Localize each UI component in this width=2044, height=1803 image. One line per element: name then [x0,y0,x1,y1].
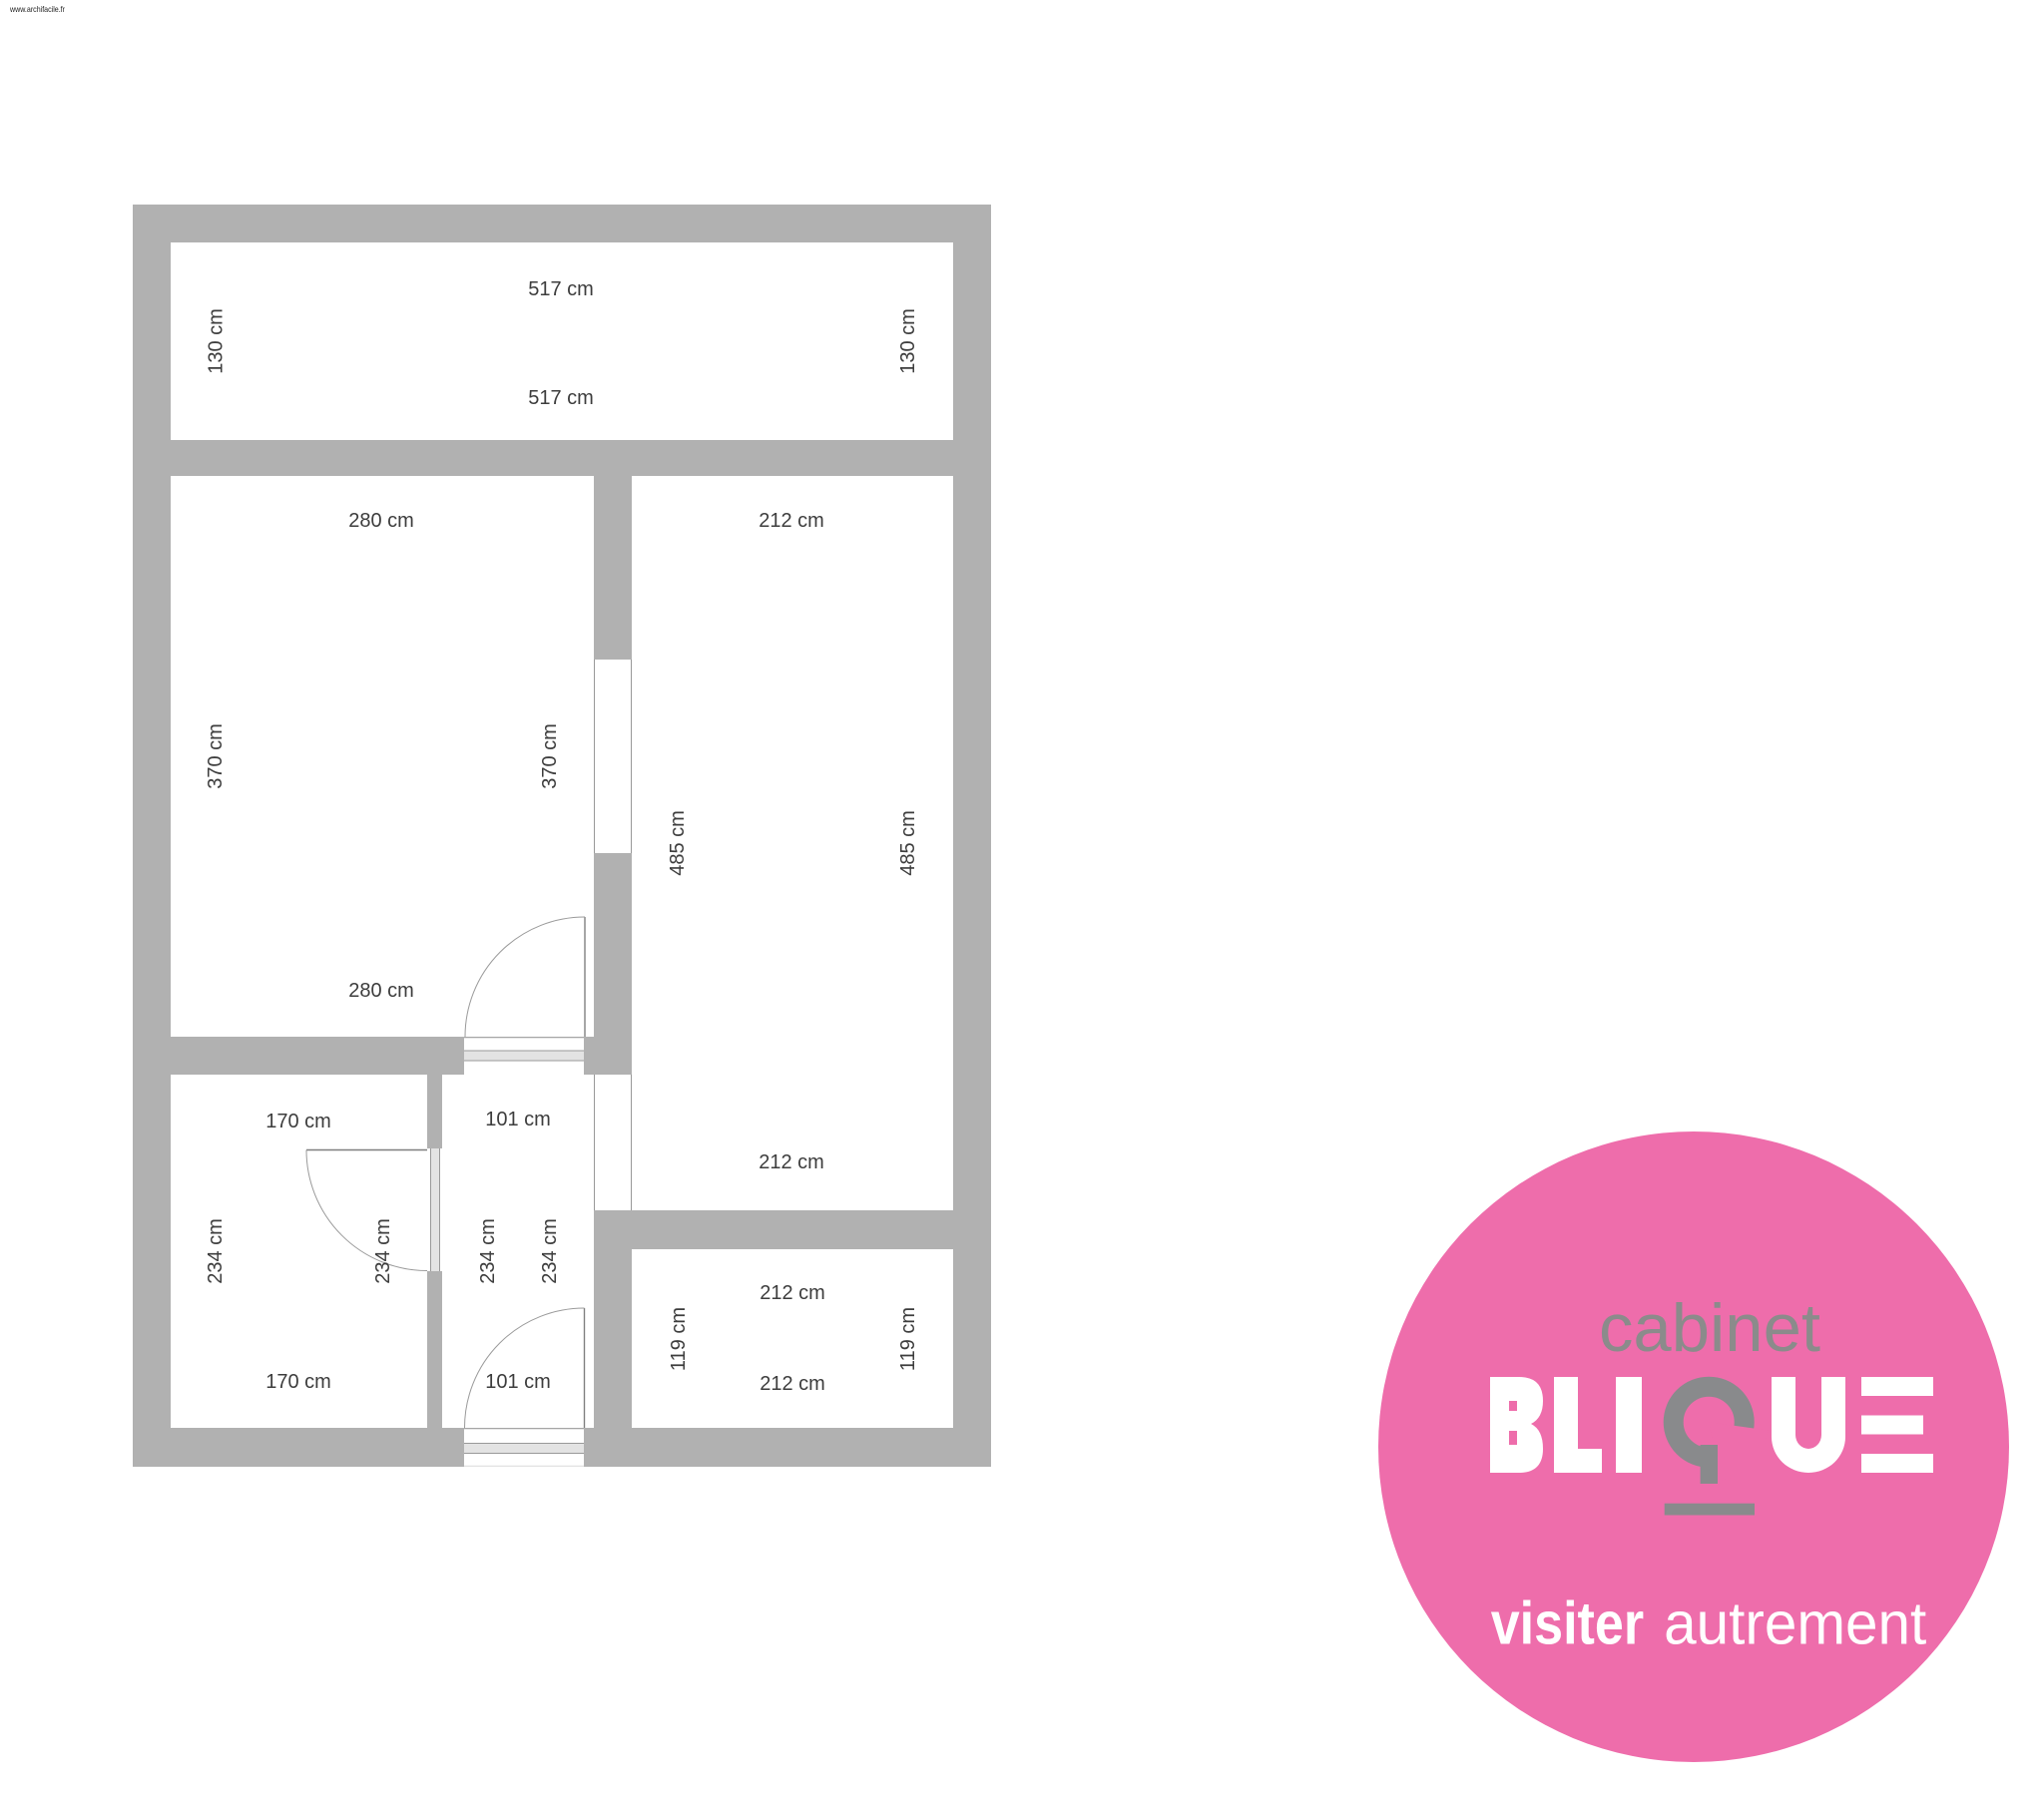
svg-text:212 cm: 212 cm [760,1373,825,1395]
svg-text:170 cm: 170 cm [265,1371,331,1393]
svg-text:234 cm: 234 cm [477,1218,499,1284]
svg-text:517 cm: 517 cm [528,278,594,300]
svg-text:212 cm: 212 cm [759,510,824,532]
svg-text:cabinet: cabinet [1599,1290,1820,1366]
svg-text:517 cm: 517 cm [528,387,594,409]
svg-text:130 cm: 130 cm [206,308,228,374]
svg-text:170 cm: 170 cm [265,1111,331,1132]
svg-text:280 cm: 280 cm [348,980,414,1002]
svg-text:119 cm: 119 cm [668,1307,690,1371]
svg-text:234 cm: 234 cm [539,1218,561,1284]
svg-text:370 cm: 370 cm [539,723,561,789]
svg-text:485 cm: 485 cm [667,810,689,876]
svg-text:101 cm: 101 cm [485,1371,551,1393]
svg-text:212 cm: 212 cm [759,1151,824,1173]
svg-text:485 cm: 485 cm [897,810,919,876]
svg-text:101 cm: 101 cm [485,1109,551,1130]
svg-text:130 cm: 130 cm [897,308,919,374]
svg-text:234 cm: 234 cm [205,1218,227,1284]
svg-text:234 cm: 234 cm [372,1218,394,1284]
svg-text:119 cm: 119 cm [897,1307,919,1371]
svg-text:www.archifacile.fr: www.archifacile.fr [9,4,65,14]
svg-text:280 cm: 280 cm [348,510,414,532]
svg-text:212 cm: 212 cm [760,1282,825,1304]
svg-text:370 cm: 370 cm [205,723,227,789]
svg-text:visiter: visiter [1491,1589,1644,1656]
svg-text:autrement: autrement [1664,1589,1927,1656]
